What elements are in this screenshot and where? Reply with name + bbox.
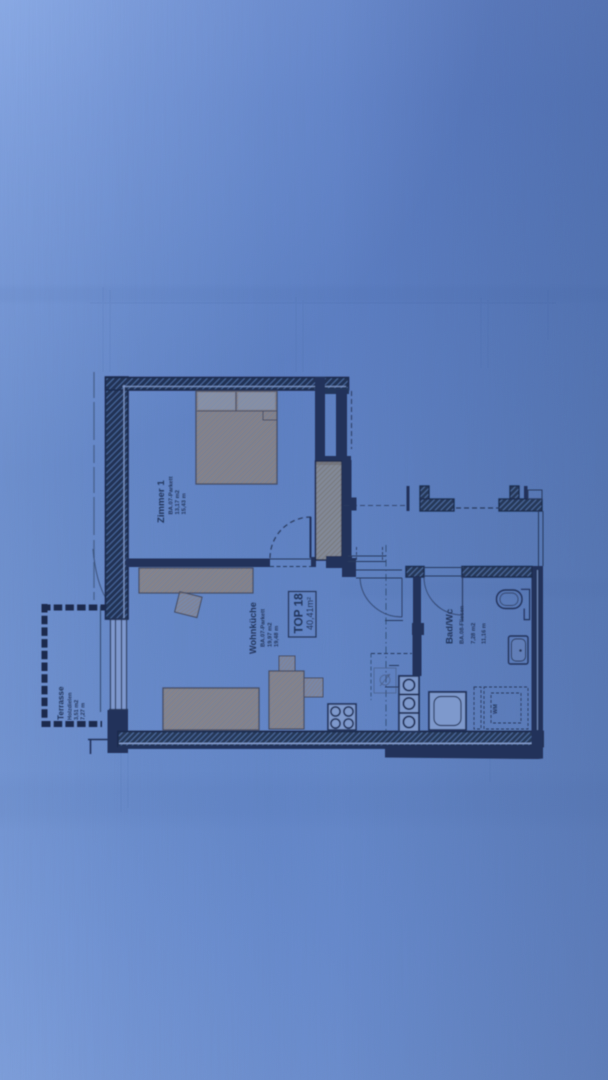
- svg-text:19,97 m2: 19,97 m2: [268, 623, 274, 648]
- svg-text:40,41m²: 40,41m²: [305, 597, 315, 630]
- svg-text:13,17 m2: 13,17 m2: [175, 490, 181, 515]
- svg-text:BA.07-Parkett: BA.07-Parkett: [169, 476, 175, 514]
- svg-text:15,43 m: 15,43 m: [182, 493, 188, 514]
- svg-text:Zimmer 1: Zimmer 1: [156, 480, 167, 523]
- svg-text:19,48 m: 19,48 m: [274, 626, 280, 647]
- svg-text:7,28 m2: 7,28 m2: [471, 623, 477, 644]
- svg-text:3,51 m2: 3,51 m2: [74, 700, 80, 720]
- svg-text:11,16 m: 11,16 m: [482, 623, 488, 644]
- svg-text:7,27 m: 7,27 m: [81, 703, 87, 720]
- svg-text:Terrasse: Terrasse: [57, 686, 66, 720]
- svg-text:BA.08-Fliesen: BA.08-Fliesen: [460, 605, 466, 644]
- svg-text:WM: WM: [493, 704, 499, 714]
- svg-text:Wohnküche: Wohnküche: [248, 602, 258, 654]
- svg-text:Holzdielen: Holzdielen: [68, 692, 74, 720]
- svg-text:TOP 18: TOP 18: [292, 593, 306, 634]
- svg-text:BA.07-Parkett: BA.07-Parkett: [261, 609, 267, 647]
- svg-text:Bad/Wc: Bad/Wc: [445, 608, 456, 644]
